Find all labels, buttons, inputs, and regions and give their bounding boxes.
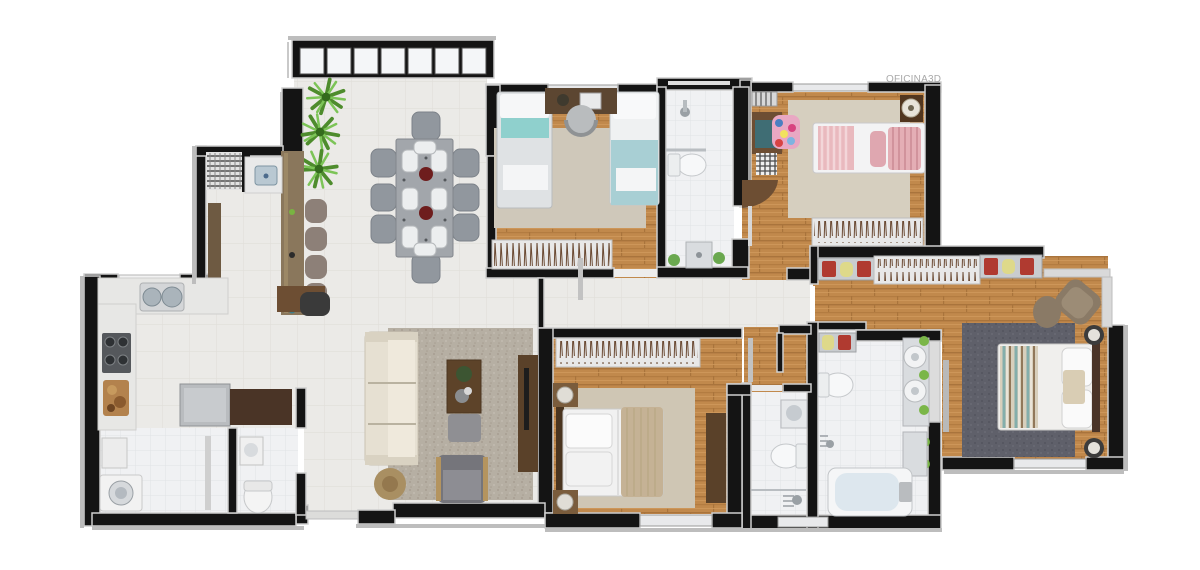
svg-text:OFICINA3D: OFICINA3D	[886, 74, 941, 85]
